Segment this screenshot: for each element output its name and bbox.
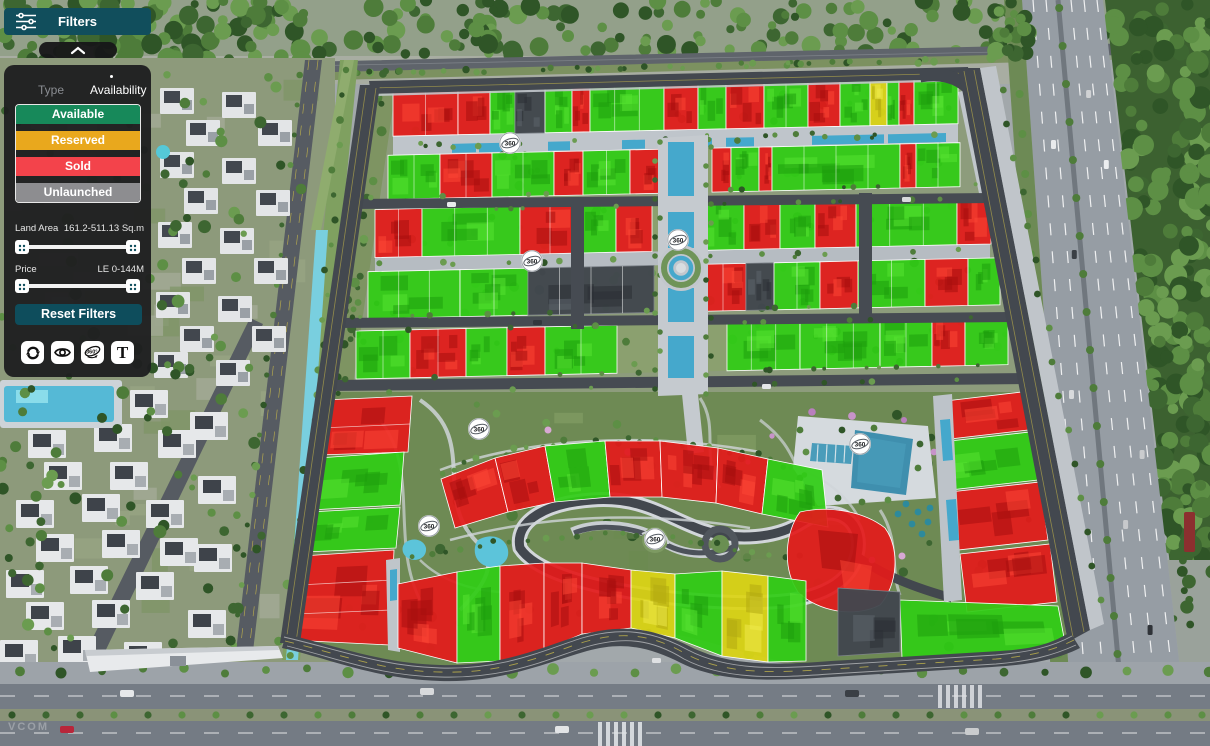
svg-text:VCOM: VCOM: [8, 721, 49, 733]
svg-text:360: 360: [527, 259, 538, 266]
svg-text:360: 360: [424, 524, 435, 531]
svg-text:360: 360: [673, 238, 684, 245]
svg-text:360: 360: [474, 427, 485, 434]
svg-text:360°: 360°: [86, 350, 97, 356]
svg-text:360: 360: [855, 442, 866, 449]
svg-text:360: 360: [505, 141, 516, 148]
svg-text:360: 360: [650, 537, 661, 544]
